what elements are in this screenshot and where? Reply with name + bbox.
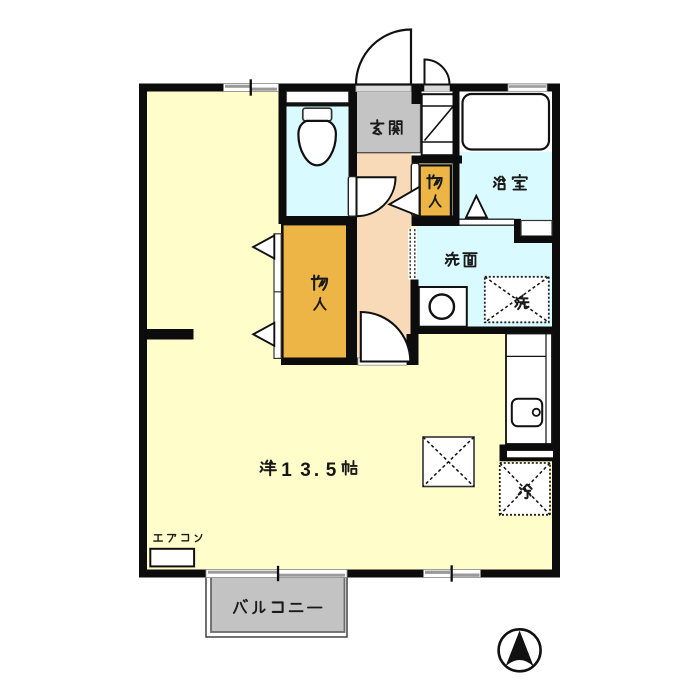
svg-text:1: 1: [281, 460, 292, 481]
svg-text:3: 3: [300, 460, 311, 481]
svg-text:5: 5: [326, 460, 337, 481]
svg-text:.: .: [314, 460, 319, 481]
